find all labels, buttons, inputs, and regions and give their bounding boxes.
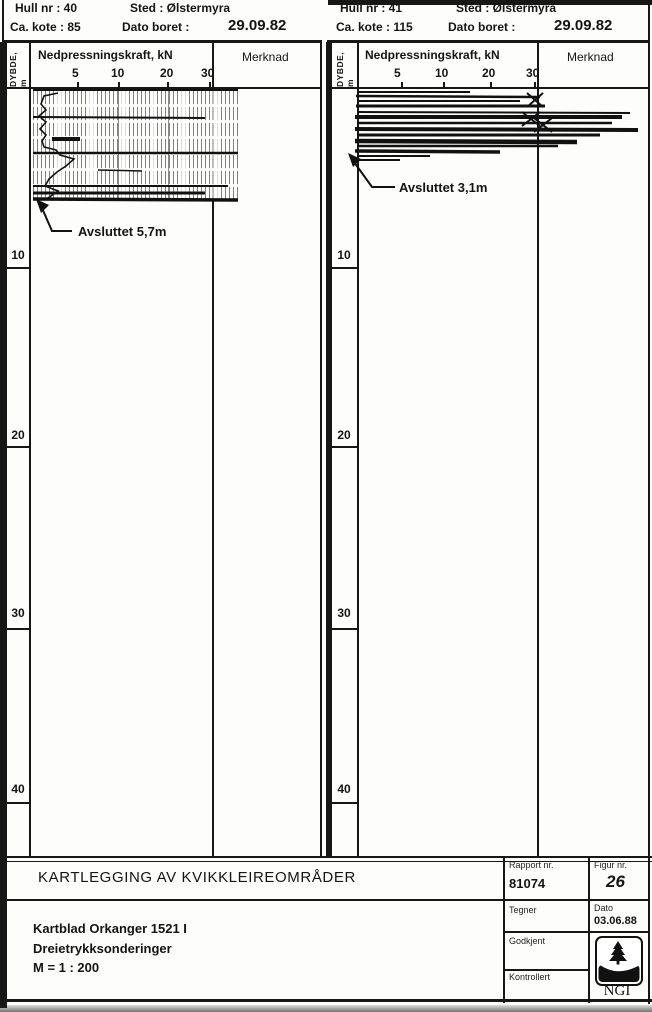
hull41-sounding-bands: [355, 92, 638, 160]
hull41-termination-arrow: [348, 153, 395, 187]
ngi-logo-text: NGI: [595, 983, 639, 1000]
figure-number-value: 26: [606, 872, 625, 892]
titleblock-col1-line: [503, 856, 505, 1003]
scale-line: M = 1 : 200: [33, 960, 99, 975]
figure-number-label: Figur nr.: [594, 860, 627, 870]
ngi-logo-base: [599, 965, 640, 982]
spruce-tree-icon: [609, 941, 627, 965]
date-value: 03.06.88: [594, 915, 637, 927]
method-line: Dreietrykksonderinger: [33, 941, 172, 956]
titleblock-top-line-b: [0, 861, 652, 862]
report-number-label: Rapport nr.: [509, 860, 554, 870]
titleblock-col2-line: [588, 856, 590, 1003]
document-title: KARTLEGGING AV KVIKKLEIREOMRÅDER: [38, 869, 356, 886]
date-label: Dato: [594, 903, 613, 913]
titleblock-row3-line: [503, 969, 589, 971]
ngi-logo-badge: [595, 936, 643, 986]
drawn-by-label: Tegner: [509, 905, 537, 915]
ngi-logo-graphic: [597, 938, 641, 984]
report-number-value: 81074: [509, 876, 545, 891]
hull40-sounding-curve: [39, 93, 74, 198]
checked-label: Kontrollert: [509, 972, 550, 982]
approved-label: Godkjent: [509, 936, 545, 946]
titleblock-bottom-line: [0, 999, 652, 1002]
hull41-termination-label: Avsluttet 3,1m: [399, 180, 487, 195]
hull40-termination-arrow: [36, 199, 72, 231]
hull40-sounding-streaks: [33, 90, 238, 200]
titleblock-top-line-a: [0, 856, 652, 858]
titleblock-left-line: [2, 856, 4, 1003]
scanned-sounding-log-sheet: Hull nr : 40 Sted : Ølstermyra Ca. kote …: [0, 0, 652, 1012]
titleblock-row2-line: [503, 931, 650, 933]
map-sheet-line: Kartblad Orkanger 1521 I: [33, 921, 187, 936]
titleblock-row1-line: [2, 899, 650, 901]
hull40-termination-label: Avsluttet 5,7m: [78, 224, 166, 239]
